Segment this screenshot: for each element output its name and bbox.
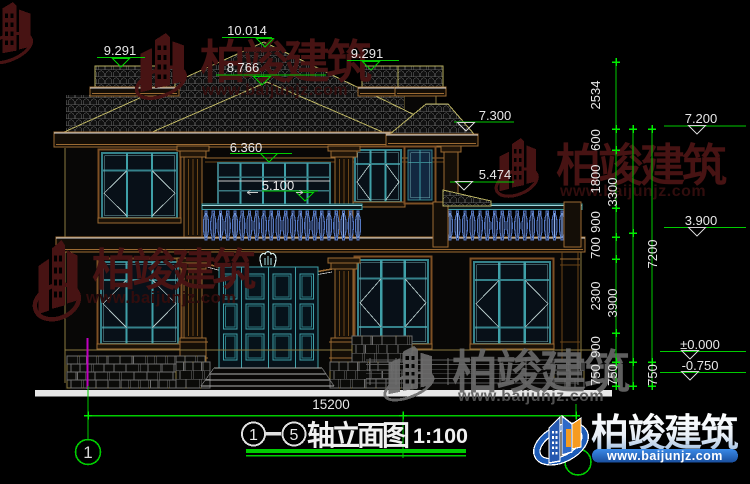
- svg-text:900: 900: [588, 211, 603, 233]
- svg-text:1: 1: [249, 427, 258, 444]
- svg-text:www.baijunjz.com: www.baijunjz.com: [85, 289, 236, 307]
- svg-text:9.291: 9.291: [351, 46, 384, 61]
- svg-text:750: 750: [605, 364, 620, 386]
- svg-text:5: 5: [290, 427, 299, 444]
- svg-text:www.baijunjz.com: www.baijunjz.com: [201, 82, 348, 99]
- svg-text:-0.750: -0.750: [682, 358, 719, 373]
- svg-text:3900: 3900: [605, 289, 620, 318]
- svg-text:9.291: 9.291: [104, 43, 137, 58]
- svg-text:900: 900: [588, 336, 603, 358]
- svg-text:1: 1: [83, 443, 92, 462]
- svg-text:±0.000: ±0.000: [680, 337, 720, 352]
- svg-text:15200: 15200: [312, 397, 350, 412]
- svg-text:750: 750: [588, 364, 603, 386]
- svg-text:www.baijunjz.com: www.baijunjz.com: [606, 449, 723, 463]
- svg-text:轴立面图: 轴立面图: [307, 419, 409, 451]
- svg-text:700: 700: [588, 237, 603, 259]
- svg-text:5.474: 5.474: [479, 167, 512, 182]
- svg-text:3.900: 3.900: [685, 213, 718, 228]
- svg-text:7.300: 7.300: [479, 108, 512, 123]
- svg-text:600: 600: [588, 129, 603, 151]
- svg-text:10.014: 10.014: [227, 23, 267, 38]
- svg-text:7200: 7200: [645, 240, 660, 269]
- svg-text:7.200: 7.200: [685, 111, 718, 126]
- svg-text:1800: 1800: [588, 165, 603, 194]
- svg-text:www.baijunjz.com: www.baijunjz.com: [457, 388, 604, 405]
- svg-text:1:100: 1:100: [413, 424, 468, 448]
- svg-text:2300: 2300: [588, 282, 603, 311]
- svg-text:3300: 3300: [605, 178, 620, 207]
- svg-text:750: 750: [645, 364, 660, 386]
- svg-text:8.766: 8.766: [227, 60, 260, 75]
- svg-text:6.360: 6.360: [230, 140, 263, 155]
- svg-text:柏竣建筑: 柏竣建筑: [92, 246, 256, 295]
- svg-text:2534: 2534: [588, 81, 603, 110]
